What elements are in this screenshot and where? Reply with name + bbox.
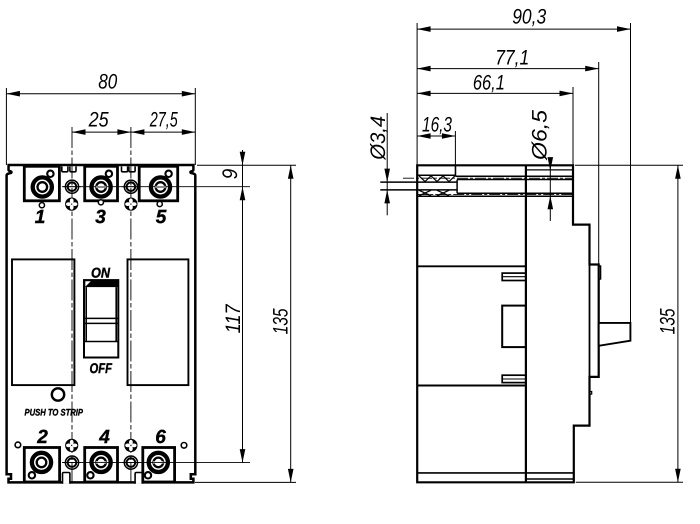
svg-text:4: 4	[98, 427, 110, 448]
svg-text:80: 80	[98, 71, 117, 94]
svg-text:77,1: 77,1	[495, 46, 529, 69]
svg-text:3: 3	[95, 207, 106, 228]
svg-text:OFF: OFF	[90, 360, 113, 376]
svg-text:90,3: 90,3	[512, 6, 546, 29]
svg-text:2: 2	[36, 427, 48, 448]
svg-text:Ø6,5: Ø6,5	[529, 110, 552, 161]
svg-text:66,1: 66,1	[473, 72, 505, 95]
svg-text:135: 135	[270, 308, 293, 334]
svg-text:PUSH TO STRIP: PUSH TO STRIP	[25, 408, 84, 419]
svg-text:117: 117	[222, 303, 245, 333]
svg-text:6: 6	[155, 427, 166, 448]
svg-text:ON: ON	[91, 264, 111, 280]
svg-text:135: 135	[657, 308, 680, 334]
svg-text:25: 25	[88, 108, 109, 131]
svg-text:16,3: 16,3	[422, 113, 452, 136]
svg-text:1: 1	[35, 207, 46, 228]
svg-text:27,5: 27,5	[149, 108, 178, 131]
svg-text:Ø3,4: Ø3,4	[367, 116, 390, 161]
svg-text:9: 9	[219, 169, 242, 180]
svg-text:5: 5	[156, 207, 167, 228]
